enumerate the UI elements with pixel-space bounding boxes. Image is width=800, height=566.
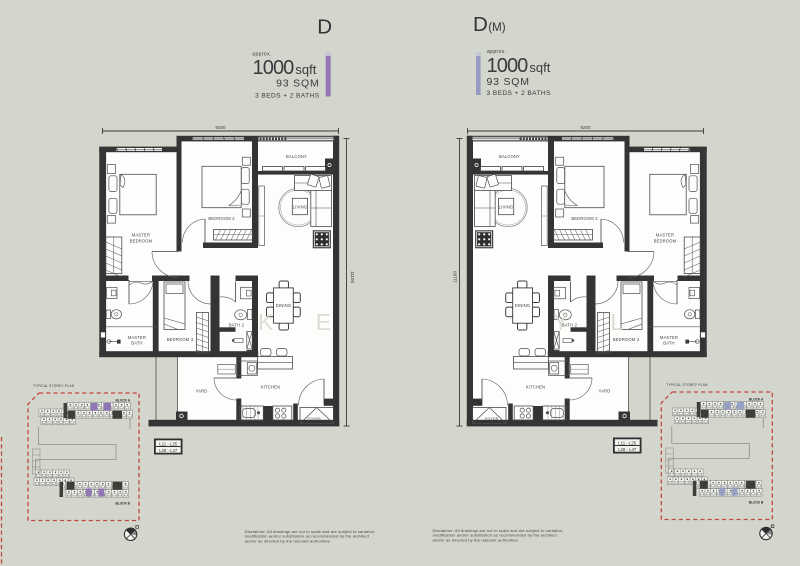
svg-text:BEDROOM 3: BEDROOM 3 (167, 337, 194, 342)
svg-text:3 BEDS + 2 BATHS: 3 BEDS + 2 BATHS (255, 93, 320, 100)
svg-text:LIVING: LIVING (499, 204, 514, 209)
svg-text:11100: 11100 (350, 271, 355, 284)
svg-text:FOYER: FOYER (485, 417, 499, 421)
svg-text:BEDROOM: BEDROOM (130, 239, 153, 244)
svg-text:BALCONY: BALCONY (286, 154, 307, 159)
svg-text:93 SQM: 93 SQM (487, 76, 530, 88)
svg-text:MASTER: MASTER (660, 335, 678, 340)
svg-text:93 SQM: 93 SQM (276, 78, 319, 90)
svg-text:BEDROOM 2: BEDROOM 2 (571, 216, 598, 221)
svg-text:D: D (317, 16, 332, 39)
svg-text:KITCHEN: KITCHEN (261, 384, 280, 389)
svg-text:BATH 2: BATH 2 (229, 323, 245, 328)
svg-text:BALCONY: BALCONY (499, 154, 520, 159)
svg-text:and/or as directed by the rele: and/or as directed by the relevant autho… (245, 538, 332, 543)
svg-text:BEDROOM 3: BEDROOM 3 (613, 337, 640, 342)
svg-text:L11 - L25: L11 - L25 (159, 441, 177, 446)
svg-text:L28 - L47: L28 - L47 (618, 447, 637, 452)
svg-text:BATH: BATH (663, 341, 674, 346)
svg-text:9200: 9200 (215, 125, 226, 130)
svg-text:FOYER: FOYER (308, 417, 322, 421)
svg-text:K E N: K E N (258, 309, 408, 335)
svg-text:BEDROOM: BEDROOM (654, 239, 677, 244)
svg-text:MASTER: MASTER (656, 233, 674, 238)
svg-text:BEDROOM 2: BEDROOM 2 (208, 216, 235, 221)
svg-text:YARD: YARD (599, 388, 611, 393)
svg-text:L11 - L25: L11 - L25 (618, 440, 636, 445)
svg-text:KITCHEN: KITCHEN (526, 384, 545, 389)
svg-text:BATH: BATH (131, 341, 142, 346)
svg-text:11100: 11100 (453, 271, 458, 284)
svg-text:L28 - L47: L28 - L47 (159, 448, 178, 453)
svg-text:3 BEDS + 2 BATHS: 3 BEDS + 2 BATHS (487, 90, 552, 97)
svg-text:LIVING: LIVING (293, 204, 308, 209)
svg-text:YARD: YARD (196, 388, 208, 393)
svg-text:9200: 9200 (580, 125, 591, 130)
svg-text:DINING: DINING (515, 303, 531, 308)
svg-text:and/or as directed by the rele: and/or as directed by the relevant autho… (433, 537, 520, 542)
svg-text:MASTER: MASTER (132, 233, 150, 238)
svg-text:BATH 2: BATH 2 (562, 323, 578, 328)
svg-text:MASTER: MASTER (128, 335, 146, 340)
svg-text:DINING: DINING (276, 303, 292, 308)
